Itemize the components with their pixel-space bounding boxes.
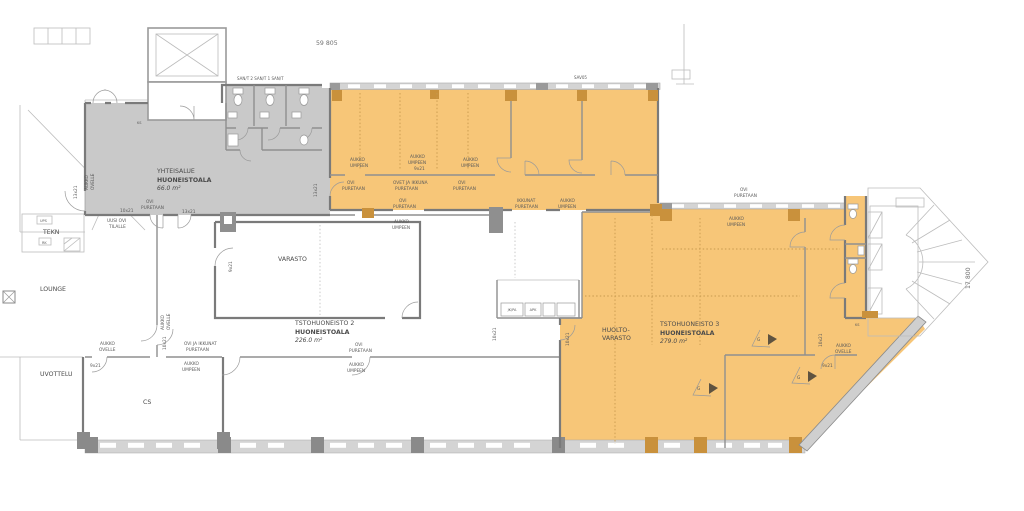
note-j3: 10x21 bbox=[120, 208, 134, 214]
note-p4: UMPEEN bbox=[182, 367, 200, 373]
region-highlight-top-band bbox=[330, 88, 658, 210]
note-q1: OVI bbox=[355, 342, 363, 348]
note-t1: 10x21 bbox=[818, 333, 824, 347]
note-a1: AUKKO bbox=[350, 157, 365, 163]
elevator-shaft bbox=[148, 28, 226, 120]
note-b3: 9x21 bbox=[414, 166, 425, 172]
label-varasto: VARASTO bbox=[278, 256, 307, 263]
note-f3: AUKKO bbox=[394, 219, 409, 225]
label-g3: G bbox=[797, 375, 800, 381]
note-k1: AUKKO bbox=[84, 175, 90, 190]
floor-plan-canvas: YHTEISALUE HUONEISTOALA 66.0 m² TSTOHUON… bbox=[0, 0, 1024, 511]
label-tsto2-size: 226.0 m² bbox=[295, 337, 323, 344]
note-f4: UMPEEN bbox=[392, 225, 410, 231]
label-rk: RK bbox=[42, 241, 47, 245]
label-tsto2-name: TSTOHUONEISTO 2 bbox=[294, 320, 354, 327]
note-o2: OVELLE bbox=[166, 313, 172, 330]
note-m1: 9x21 bbox=[228, 261, 234, 272]
note-s1: 10x21 bbox=[565, 332, 571, 346]
label-apk: APK bbox=[530, 308, 538, 312]
note-d1: AUKKO bbox=[463, 157, 478, 163]
label-yhteisalue-kind: HUONEISTOALA bbox=[157, 177, 212, 184]
note-i4: UMPEEN bbox=[727, 222, 745, 228]
label-tekn: TEKN bbox=[42, 229, 60, 236]
note-o3: 10x21 bbox=[162, 336, 168, 350]
note-a4: PURETAAN bbox=[342, 186, 365, 192]
note-d2: UMPEEN bbox=[461, 163, 479, 169]
note-i1: OVI bbox=[740, 187, 748, 193]
label-ks-left: KS bbox=[137, 121, 142, 125]
dimension-top: 59 805 bbox=[316, 40, 338, 47]
label-tsto3-kind: HUONEISTOALA bbox=[660, 330, 715, 337]
label-sav: SAV05 bbox=[574, 75, 587, 80]
label-jkpa: JK/PA bbox=[507, 308, 517, 312]
note-p3: AUKKO bbox=[184, 361, 199, 367]
note-p2: PURETAAN bbox=[186, 347, 209, 353]
note-e2: PURETAAN bbox=[453, 186, 476, 192]
label-ks-right: KS bbox=[855, 323, 860, 327]
note-i2: PURETAAN bbox=[734, 193, 757, 199]
note-u1: AUKKO bbox=[836, 343, 851, 349]
label-huolto-1: HUOLTO- bbox=[602, 327, 630, 334]
note-q2: PURETAAN bbox=[349, 348, 372, 354]
label-yhteisalue-name: YHTEISALUE bbox=[156, 168, 195, 175]
label-huolto-2: VARASTO bbox=[602, 335, 631, 342]
note-j2: PURETAAN bbox=[141, 205, 164, 211]
note-j5: UUSI OVI bbox=[107, 218, 126, 224]
note-v1: 9x21 bbox=[822, 363, 833, 369]
note-a3: OVI bbox=[347, 180, 355, 186]
note-c2: PURETAAN bbox=[395, 186, 418, 192]
note-l1: 13x21 bbox=[313, 183, 319, 197]
label-neuvottelu: UVOTTELU bbox=[40, 371, 73, 378]
note-e1: OVI bbox=[458, 180, 466, 186]
note-r1: 10x21 bbox=[492, 327, 498, 341]
note-c1: OVET JA IKKUNA bbox=[393, 180, 428, 186]
label-tsto3-name: TSTOHUONEISTO 3 bbox=[659, 321, 719, 328]
note-o1: AUKKO bbox=[160, 315, 166, 330]
label-tsto3-size: 279.0 m² bbox=[660, 338, 688, 345]
note-a2: UMPEEN bbox=[350, 163, 368, 169]
note-q4: UMPEEN bbox=[347, 368, 365, 374]
note-k3: 13x21 bbox=[73, 185, 79, 199]
note-b2: UMPEEN bbox=[408, 160, 426, 166]
note-g2: PURETAAN bbox=[515, 204, 538, 210]
label-lounge: LOUNGE bbox=[40, 286, 66, 293]
note-h1: AUKKO bbox=[560, 198, 575, 204]
note-i3: AUKKO bbox=[729, 216, 744, 222]
label-san-row: SAN/T 2 SAN/T 1 SAN/T bbox=[237, 76, 284, 81]
note-j6: TILALLE bbox=[108, 224, 126, 230]
note-n3: 9x21 bbox=[90, 363, 101, 369]
label-g2: G bbox=[697, 386, 700, 392]
note-q3: AUKKO bbox=[349, 362, 364, 368]
label-cs: CS bbox=[143, 399, 151, 406]
note-p1: OVI JA IKKUNAT bbox=[184, 341, 217, 347]
label-ups: UPS bbox=[40, 219, 48, 223]
note-u2: OVELLE bbox=[835, 349, 852, 355]
label-yhteisalue-size: 66.0 m² bbox=[157, 185, 181, 192]
note-j1: OVI bbox=[146, 199, 154, 205]
note-n2: OVELLE bbox=[99, 347, 116, 353]
note-n1: AUKKO bbox=[100, 341, 115, 347]
note-j4: 13x21 bbox=[182, 209, 196, 215]
note-f1: OVI bbox=[399, 198, 407, 204]
label-tsto2-kind: HUONEISTOALA bbox=[295, 329, 350, 336]
note-g1: IKKUNAT bbox=[517, 198, 536, 204]
spiral-stair bbox=[868, 188, 988, 336]
note-f2: PURETAAN bbox=[393, 204, 416, 210]
kitchen-nook bbox=[497, 280, 582, 318]
note-b1: AUKKO bbox=[410, 154, 425, 160]
note-h2: UMPEEN bbox=[558, 204, 576, 210]
note-k2: OVELLE bbox=[90, 173, 96, 190]
floor-plan-page: YHTEISALUE HUONEISTOALA 66.0 m² TSTOHUON… bbox=[0, 0, 1024, 511]
dimension-right: 17 800 bbox=[965, 267, 972, 289]
label-g1: G bbox=[757, 337, 760, 343]
